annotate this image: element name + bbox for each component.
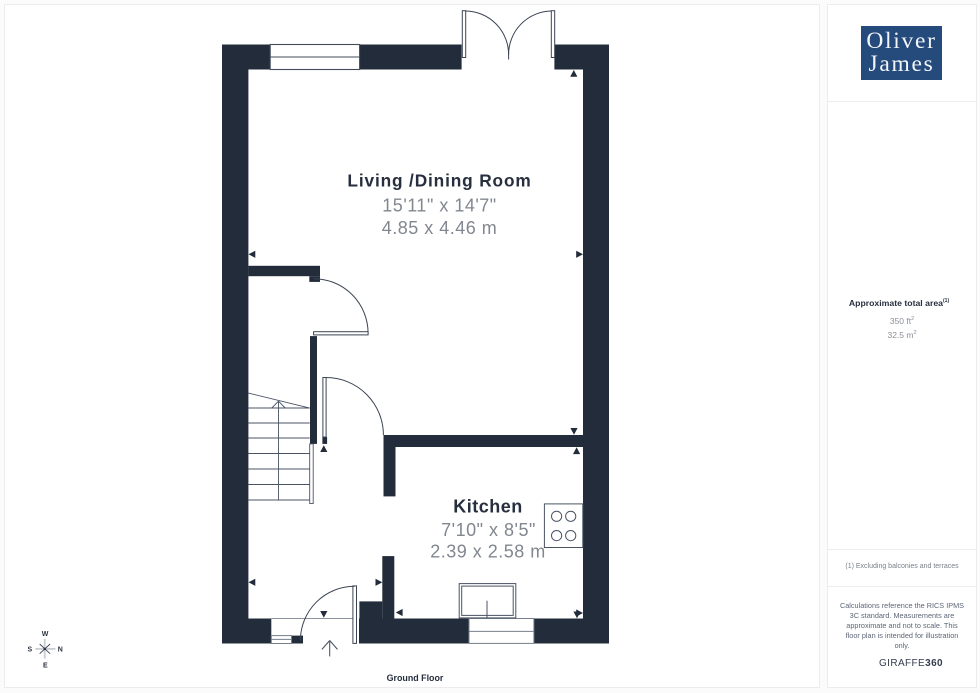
svg-text:Living /Dining Room: Living /Dining Room (347, 170, 531, 190)
svg-text:W: W (42, 631, 49, 638)
svg-text:S: S (27, 647, 32, 654)
svg-text:2.39 x 2.58 m: 2.39 x 2.58 m (430, 542, 546, 562)
svg-text:15'11" x 14'7": 15'11" x 14'7" (382, 196, 496, 216)
svg-text:E: E (43, 663, 48, 670)
svg-text:Kitchen: Kitchen (453, 497, 523, 517)
svg-text:7'10" x 8'5": 7'10" x 8'5" (441, 520, 536, 540)
svg-text:N: N (58, 647, 63, 654)
svg-text:4.85 x 4.46 m: 4.85 x 4.46 m (382, 218, 498, 238)
